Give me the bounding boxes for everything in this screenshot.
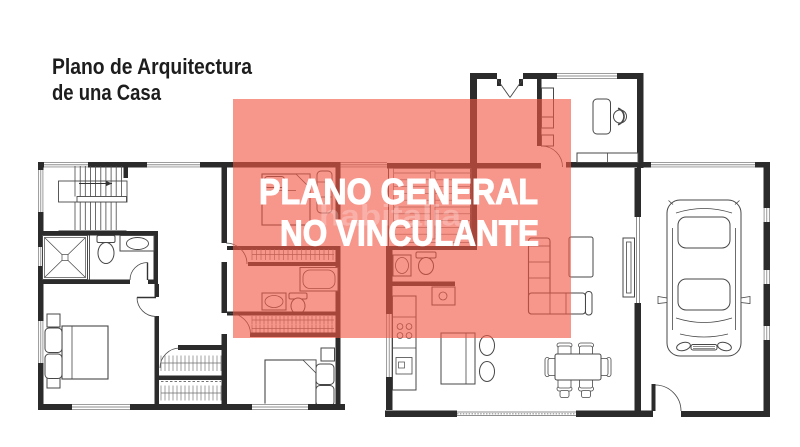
svg-text:Plano de Arquitectura: Plano de Arquitectura (52, 54, 253, 79)
svg-text:PLANO GENERAL: PLANO GENERAL (259, 171, 538, 212)
svg-text:NO VINCULANTE: NO VINCULANTE (280, 213, 539, 254)
svg-text:de una Casa: de una Casa (52, 80, 162, 105)
